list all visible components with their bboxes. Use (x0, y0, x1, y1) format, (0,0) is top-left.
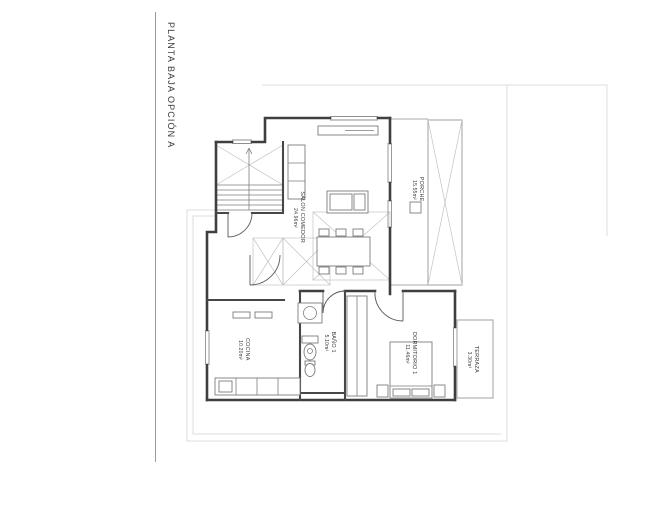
door-bedroom (375, 291, 403, 321)
kitchen-cabinet-1 (233, 312, 250, 318)
kitchen-furniture (215, 312, 300, 395)
staircase (216, 145, 283, 210)
door-hall (250, 255, 280, 285)
wall-left (207, 142, 216, 400)
room-label-porche: PORCHE 15.55m² (411, 177, 424, 203)
bidet (305, 361, 315, 377)
bathroom-fixtures (298, 303, 322, 377)
kitchen-cabinet-2 (255, 312, 272, 318)
wardrobe (347, 296, 367, 396)
site-outline-top (262, 85, 607, 236)
bedroom-furniture (347, 296, 445, 398)
bed (390, 342, 432, 398)
nightstand-left (377, 385, 388, 397)
sofa (327, 191, 368, 213)
window-kitchen (206, 330, 210, 365)
window-stair (232, 140, 252, 144)
porch-structure (390, 119, 462, 285)
nightstand-right (434, 385, 445, 397)
porch-column (410, 202, 421, 213)
stair-treads (216, 185, 283, 210)
door-bathroom (323, 291, 345, 313)
door-stair (228, 213, 252, 237)
wall-stair-enclosure (216, 142, 283, 213)
stair-direction-arrow (246, 148, 252, 210)
window-salon-top (330, 117, 378, 121)
dining-table (317, 229, 370, 274)
washbasin (298, 303, 322, 323)
toilet (302, 336, 318, 360)
room-label-terraza: TERRAZA 3.30m² (466, 346, 479, 375)
room-label-bano-1: BAÑO 1 5.10m² (323, 331, 337, 354)
kitchen-sink (219, 381, 232, 392)
room-label-cocina: COCINA 10.20m² (237, 338, 250, 362)
window-salon-1 (388, 143, 392, 183)
floor-plan-drawing: PLANTA BAJA OPCIÓN A (0, 0, 665, 532)
title-block: PLANTA BAJA OPCIÓN A (156, 12, 177, 462)
floor-plan-sheet: PLANTA BAJA OPCIÓN A (0, 0, 665, 532)
page-title: PLANTA BAJA OPCIÓN A (166, 22, 176, 148)
